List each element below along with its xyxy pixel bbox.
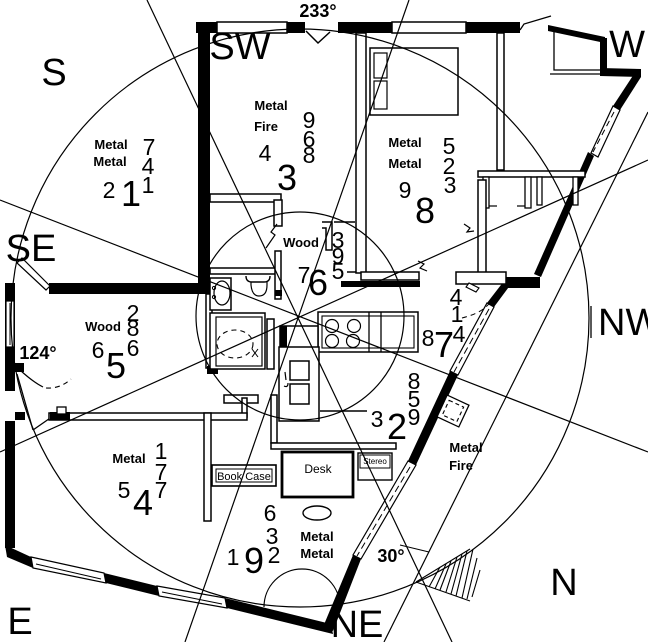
svg-text:233°: 233°: [299, 1, 336, 21]
svg-text:W: W: [609, 24, 645, 66]
svg-text:Metal: Metal: [94, 137, 127, 152]
svg-text:6: 6: [127, 335, 140, 361]
svg-text:2: 2: [387, 406, 407, 447]
svg-text:9: 9: [408, 404, 421, 430]
svg-text:5: 5: [332, 258, 345, 284]
svg-text:124°: 124°: [19, 343, 56, 363]
svg-text:Metal: Metal: [300, 546, 333, 561]
svg-text:3: 3: [371, 406, 384, 432]
svg-text:Metal: Metal: [112, 451, 145, 466]
svg-text:Wood: Wood: [85, 319, 121, 334]
svg-text:5: 5: [118, 477, 131, 503]
svg-text:9: 9: [399, 177, 412, 203]
svg-text:8: 8: [422, 325, 435, 351]
svg-text:SE: SE: [6, 228, 57, 270]
svg-text:Fire: Fire: [449, 458, 473, 473]
svg-text:Metal: Metal: [254, 98, 287, 113]
svg-text:2: 2: [103, 177, 116, 203]
svg-text:Metal: Metal: [93, 154, 126, 169]
svg-text:Metal: Metal: [388, 156, 421, 171]
svg-text:1: 1: [121, 173, 141, 214]
svg-text:4: 4: [259, 140, 272, 166]
svg-text:8: 8: [415, 190, 435, 231]
svg-text:NW: NW: [598, 302, 648, 344]
svg-text:4: 4: [453, 321, 466, 347]
svg-text:3: 3: [444, 172, 457, 198]
svg-text:SW: SW: [209, 26, 270, 68]
svg-text:Metal: Metal: [300, 529, 333, 544]
svg-text:N: N: [550, 562, 577, 604]
svg-text:Desk: Desk: [304, 462, 332, 476]
svg-text:NE: NE: [331, 604, 384, 642]
svg-text:E: E: [7, 601, 32, 642]
svg-text:7: 7: [155, 477, 168, 503]
svg-text:5: 5: [106, 345, 126, 386]
svg-text:2: 2: [268, 542, 281, 568]
svg-text:Metal: Metal: [449, 440, 482, 455]
svg-text:30°: 30°: [377, 546, 404, 566]
svg-text:7: 7: [434, 324, 454, 365]
svg-text:Metal: Metal: [388, 135, 421, 150]
svg-text:1: 1: [142, 172, 155, 198]
svg-text:6: 6: [308, 262, 328, 303]
svg-text:S: S: [41, 52, 66, 94]
svg-text:Fire: Fire: [254, 119, 278, 134]
svg-text:8: 8: [303, 142, 316, 168]
svg-text:Wood: Wood: [283, 235, 319, 250]
svg-text:1: 1: [227, 544, 240, 570]
svg-text:6: 6: [92, 337, 105, 363]
svg-text:4: 4: [133, 482, 153, 523]
svg-text:9: 9: [244, 540, 264, 581]
svg-text:3: 3: [277, 157, 297, 198]
